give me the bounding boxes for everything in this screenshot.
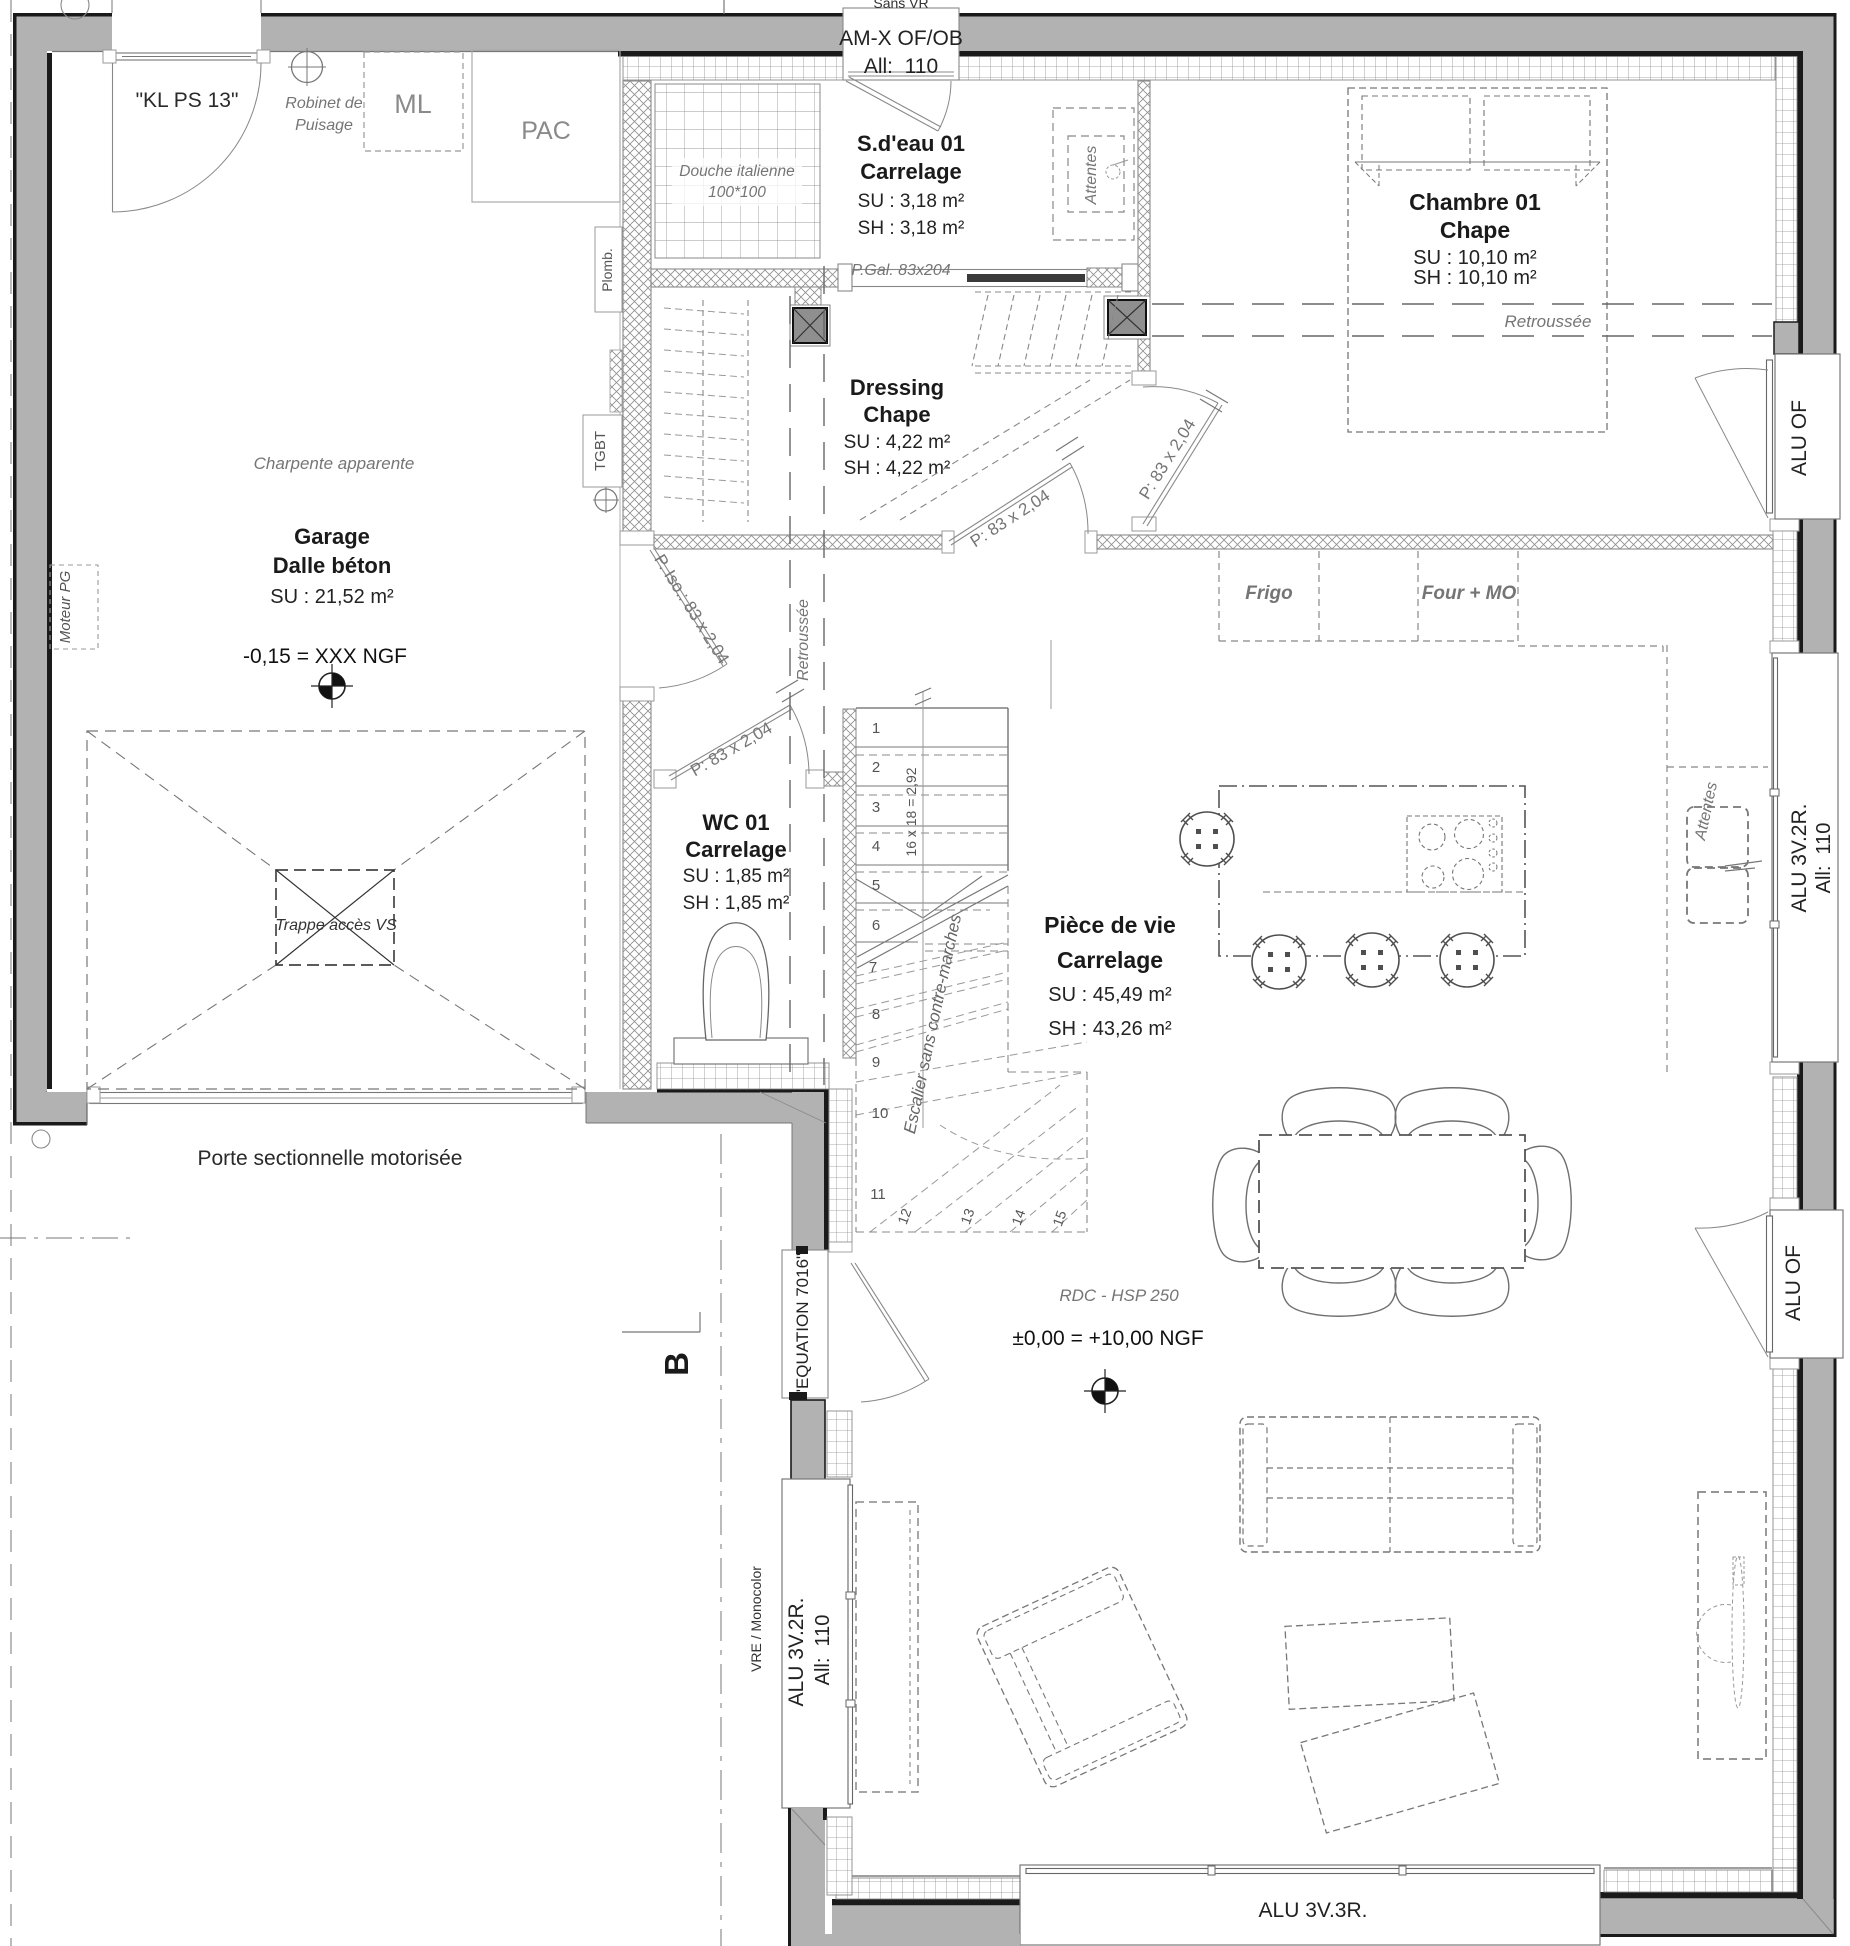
svg-text:SU : 45,49 m²: SU : 45,49 m² [1048, 984, 1172, 1006]
svg-text:-0,15 = XXX NGF: -0,15 = XXX NGF [243, 645, 407, 668]
svg-text:6: 6 [872, 917, 880, 934]
svg-text:All: 110: All: 110 [864, 55, 938, 78]
svg-text:SU : 21,52 m²: SU : 21,52 m² [270, 586, 394, 608]
svg-text:Garage: Garage [294, 524, 370, 549]
svg-text:S.d'eau 01: S.d'eau 01 [857, 131, 965, 156]
svg-text:Dalle béton: Dalle béton [273, 553, 392, 578]
svg-text:SU : 1,85 m²: SU : 1,85 m² [683, 866, 790, 887]
svg-text:Attentes: Attentes [1083, 146, 1100, 206]
svg-text:Carrelage: Carrelage [1057, 947, 1163, 973]
svg-text:Retroussée: Retroussée [1505, 312, 1592, 331]
svg-text:2: 2 [872, 759, 880, 776]
svg-text:SU : 10,10 m²: SU : 10,10 m² [1413, 247, 1537, 269]
svg-text:±0,00 = +10,00 NGF: ±0,00 = +10,00 NGF [1012, 1327, 1203, 1350]
svg-text:SH : 10,10 m²: SH : 10,10 m² [1413, 267, 1537, 289]
svg-text:AM-X OF/OB: AM-X OF/OB [839, 27, 963, 50]
svg-text:8: 8 [872, 1006, 880, 1023]
svg-text:Four + MO: Four + MO [1422, 583, 1517, 604]
svg-text:7: 7 [869, 959, 877, 976]
svg-text:Plomb.: Plomb. [599, 248, 615, 292]
svg-text:Chambre 01: Chambre 01 [1409, 189, 1541, 215]
svg-text:ALU 3V.3R.: ALU 3V.3R. [1259, 1899, 1368, 1922]
svg-text:RDC - HSP 250: RDC - HSP 250 [1059, 1286, 1179, 1305]
svg-text:Dressing: Dressing [850, 375, 944, 400]
svg-text:"KL PS 13": "KL PS 13" [136, 89, 239, 112]
svg-text:Robinet de: Robinet de [285, 95, 362, 112]
svg-text:WC 01: WC 01 [702, 810, 769, 835]
svg-text:ML: ML [394, 89, 432, 119]
svg-text:Retroussée: Retroussée [795, 599, 812, 681]
svg-text:Porte sectionnelle motorisée: Porte sectionnelle motorisée [198, 1147, 463, 1170]
svg-text:P.Gal. 83x204: P.Gal. 83x204 [851, 262, 950, 279]
svg-text:B: B [658, 1352, 695, 1376]
svg-text:PAC: PAC [521, 117, 571, 145]
svg-text:1: 1 [872, 720, 880, 737]
svg-text:SU : 3,18 m²: SU : 3,18 m² [858, 191, 965, 212]
svg-text:9: 9 [872, 1054, 880, 1071]
svg-text:SU : 4,22 m²: SU : 4,22 m² [844, 432, 951, 453]
svg-text:ALU OF: ALU OF [1788, 400, 1811, 476]
svg-text:Chape: Chape [863, 402, 930, 427]
svg-text:ALU 3V.2R.: ALU 3V.2R. [785, 1598, 808, 1707]
svg-text:SH : 4,22 m²: SH : 4,22 m² [844, 458, 951, 479]
svg-text:Pièce de vie: Pièce de vie [1044, 912, 1176, 938]
svg-text:11: 11 [870, 1186, 886, 1203]
svg-text:3: 3 [872, 799, 880, 816]
svg-text:10: 10 [872, 1105, 889, 1122]
svg-text:SH : 1,85 m²: SH : 1,85 m² [683, 893, 790, 914]
svg-text:5: 5 [872, 877, 880, 894]
svg-text:Charpente apparente: Charpente apparente [254, 454, 415, 473]
svg-text:4: 4 [872, 838, 880, 855]
svg-text:"EQUATION 7016": "EQUATION 7016" [793, 1253, 812, 1395]
svg-text:Moteur PG: Moteur PG [57, 570, 74, 643]
svg-text:SH : 3,18 m²: SH : 3,18 m² [858, 218, 965, 239]
svg-text:SH : 43,26 m²: SH : 43,26 m² [1048, 1018, 1172, 1040]
svg-text:100*100: 100*100 [708, 184, 766, 201]
svg-text:Carrelage: Carrelage [860, 159, 962, 184]
svg-text:Puisage: Puisage [295, 117, 353, 134]
svg-text:Carrelage: Carrelage [685, 837, 787, 862]
svg-text:Douche italienne: Douche italienne [679, 163, 795, 180]
svg-text:Frigo: Frigo [1245, 583, 1293, 604]
svg-text:ALU 3V.2R.: ALU 3V.2R. [1788, 804, 1811, 913]
svg-text:All: 110: All: 110 [812, 1615, 834, 1686]
svg-text:Chape: Chape [1440, 217, 1510, 243]
svg-text:All: 110: All: 110 [1813, 823, 1835, 894]
svg-text:VRE / Monocolor: VRE / Monocolor [748, 1566, 764, 1672]
svg-text:Trappe accès VS: Trappe accès VS [275, 917, 397, 934]
svg-text:ALU OF: ALU OF [1782, 1245, 1805, 1321]
svg-text:Sans VR: Sans VR [873, 0, 928, 11]
svg-text:16 x 18 = 2,92: 16 x 18 = 2,92 [903, 767, 919, 856]
svg-text:TGBT: TGBT [592, 431, 609, 471]
